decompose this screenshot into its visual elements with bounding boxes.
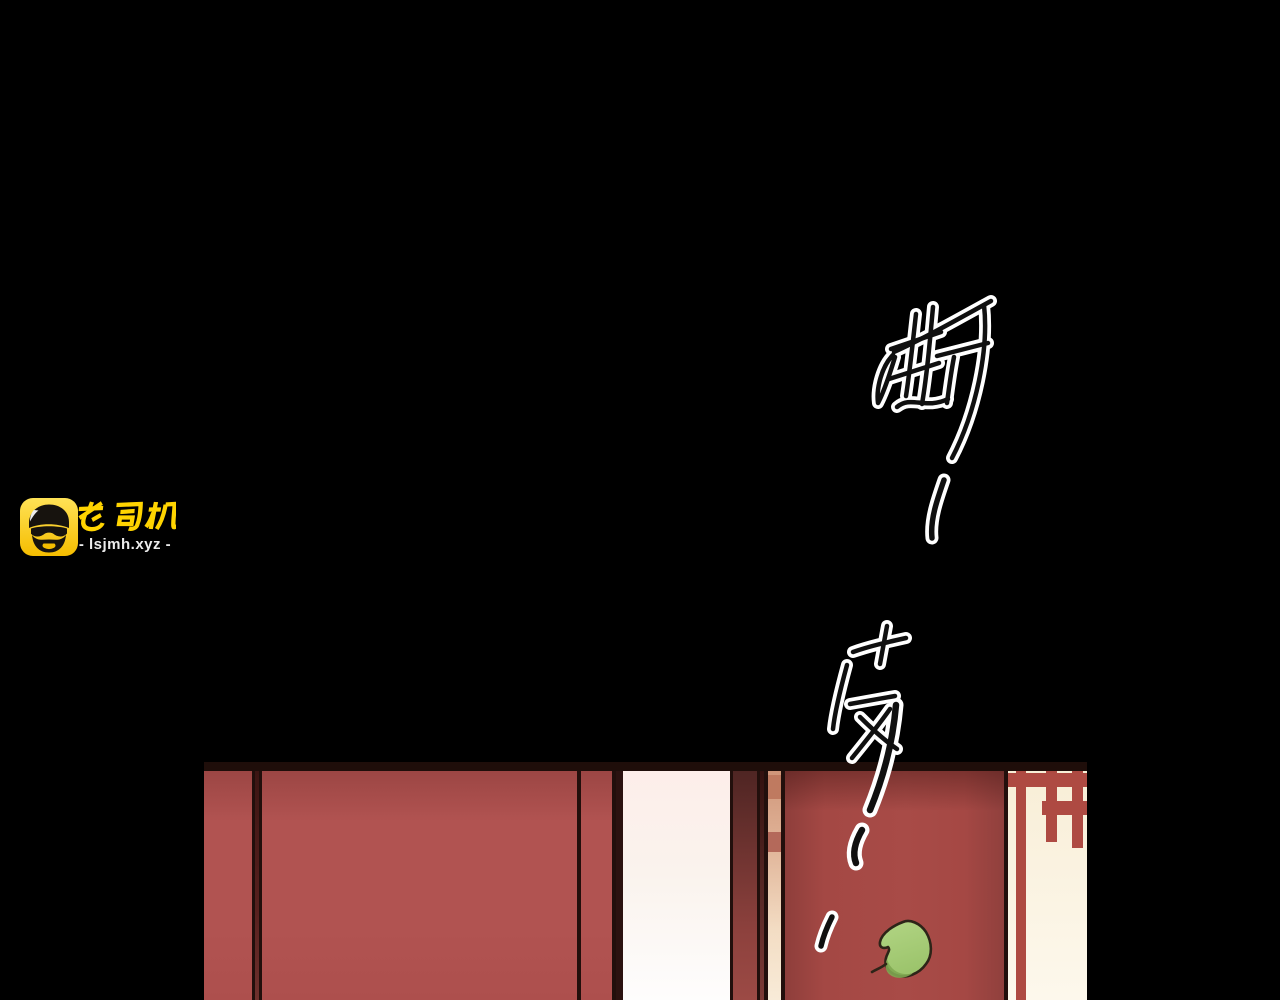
door-edge-shadow: [730, 771, 757, 1000]
lattice-bar: [1046, 771, 1057, 842]
lit-gap-block: [768, 832, 781, 852]
lattice-bar: [1016, 771, 1026, 1000]
lattice-bar: [1072, 771, 1083, 848]
lit-gap-block: [768, 775, 781, 799]
red-wall-left: [204, 771, 252, 1000]
brand-char-si: [113, 504, 142, 529]
shadow-gap: [616, 771, 623, 1000]
falling-leaf: [868, 914, 940, 986]
brand-char-ji: [146, 502, 176, 529]
sfx-top-char: [878, 301, 991, 458]
comic-page: - lsjmh.xyz -: [0, 0, 1280, 1000]
panel-top-border: [204, 762, 1087, 771]
red-wall-right: [581, 771, 612, 1000]
comic-panel: [204, 762, 1087, 1000]
lit-gap-strip: [768, 771, 781, 1000]
red-wall-main: [262, 771, 577, 1000]
doorway-light: [623, 771, 730, 1000]
site-url-label: - lsjmh.xyz -: [66, 536, 184, 553]
brand-logotype: [76, 499, 176, 536]
brand-char-lao: [76, 502, 106, 529]
sfx-dash: [932, 480, 944, 538]
